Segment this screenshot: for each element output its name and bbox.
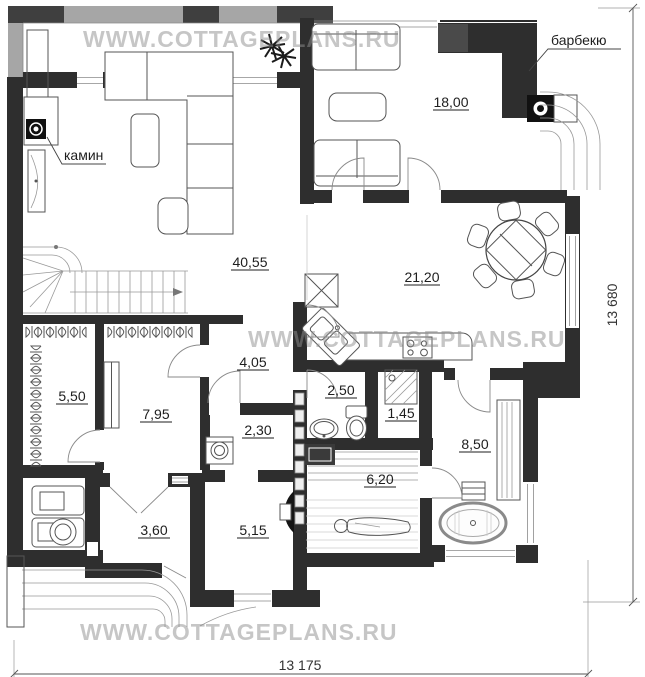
watermark-top: WWW.COTTAGEPLANS.RU [83, 26, 401, 52]
label-hallway-area: 4,05 [239, 354, 266, 370]
watermark-bottom: WWW.COTTAGEPLANS.RU [80, 619, 398, 645]
shower-tray [385, 370, 417, 404]
stairs-direction-arrow [70, 288, 183, 296]
watermark-middle: WWW.COTTAGEPLANS.RU [248, 326, 566, 352]
toilet [346, 406, 367, 440]
sauna-stove [305, 444, 335, 465]
fireplace-label: камин [64, 147, 103, 163]
floor-plan-canvas: 13 175 13 680 40,55 18,00 21,20 4,05 2,5… [0, 0, 645, 677]
bathtub [440, 503, 506, 543]
label-sauna-area: 6,20 [366, 471, 393, 487]
label-shower-area: 1,45 [387, 405, 414, 421]
corner-sofa [105, 52, 233, 234]
label-terrace-area: 18,00 [433, 94, 468, 110]
label-wardrobe-area: 5,50 [58, 388, 85, 404]
bath-step-ladder [462, 482, 485, 500]
wc-sink [310, 419, 338, 439]
terrace-table [329, 93, 386, 121]
label-anteroom-area: 5,15 [239, 522, 266, 538]
staircase [23, 245, 188, 313]
label-living-area: 40,55 [232, 254, 267, 270]
sauna-person [335, 518, 411, 536]
coffee-table [131, 114, 159, 167]
washing-machine [206, 437, 233, 464]
barbecue-label: барбекю [551, 32, 607, 48]
label-bathroom-area: 8,50 [461, 436, 488, 452]
boiler-equipment [32, 486, 84, 547]
bath-shelf [497, 400, 520, 500]
label-laundry-area: 2,30 [244, 422, 271, 438]
tv-cabinet [28, 150, 45, 212]
barbecue-callout: барбекю [529, 32, 621, 71]
label-hall-area: 7,95 [142, 406, 169, 422]
label-kitchen-area: 21,20 [404, 269, 439, 285]
dimension-width: 13 175 [279, 657, 322, 673]
dimension-height: 13 680 [604, 283, 620, 326]
label-wc-area: 2,50 [327, 382, 354, 398]
hall-bench [104, 362, 119, 428]
floor-plan-page: 13 175 13 680 40,55 18,00 21,20 4,05 2,5… [0, 0, 645, 677]
label-vestibule-area: 3,60 [140, 522, 167, 538]
stove-firebox [280, 491, 294, 533]
dining-set [466, 200, 566, 300]
